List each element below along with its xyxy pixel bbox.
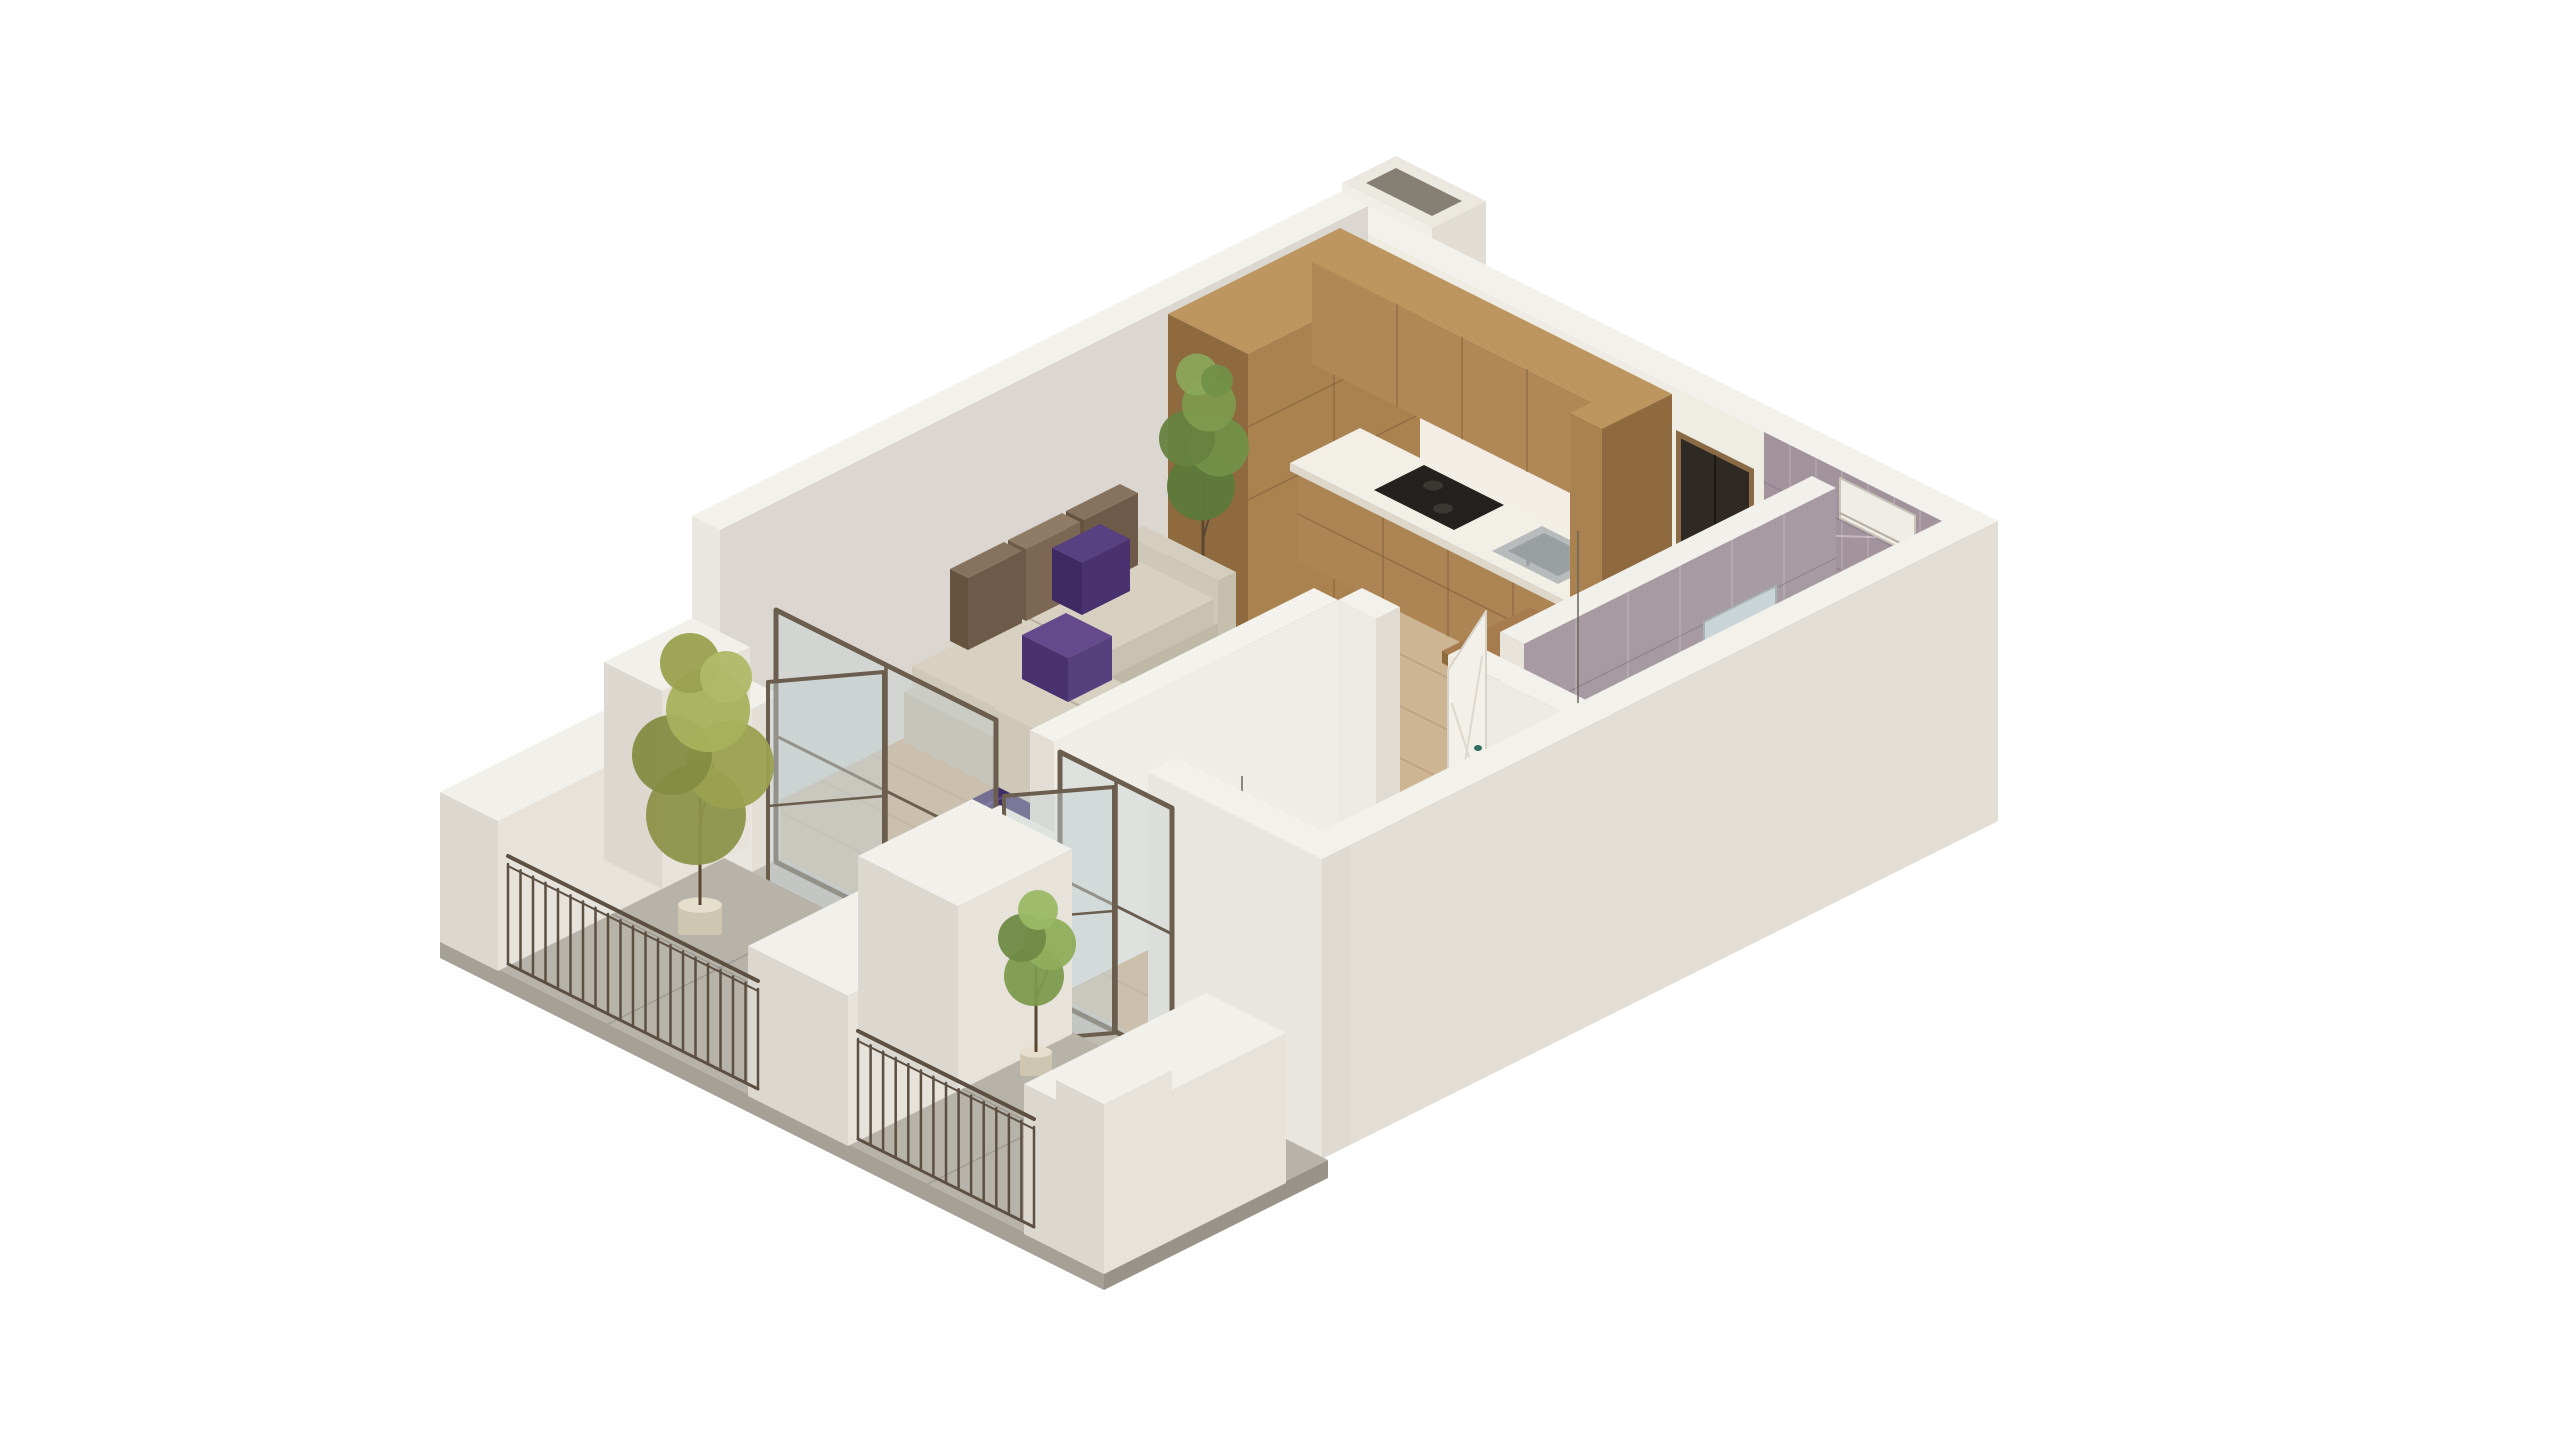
burner-2 (1433, 504, 1453, 514)
bedroom-door-handle (1474, 745, 1482, 751)
floorplan-canvas (0, 0, 2560, 1440)
floorplan-render: Isometric 3D apartment floor plan render (0, 0, 2560, 1440)
burner-1 (1423, 481, 1443, 491)
parapet-right-post (1056, 1046, 1172, 1274)
